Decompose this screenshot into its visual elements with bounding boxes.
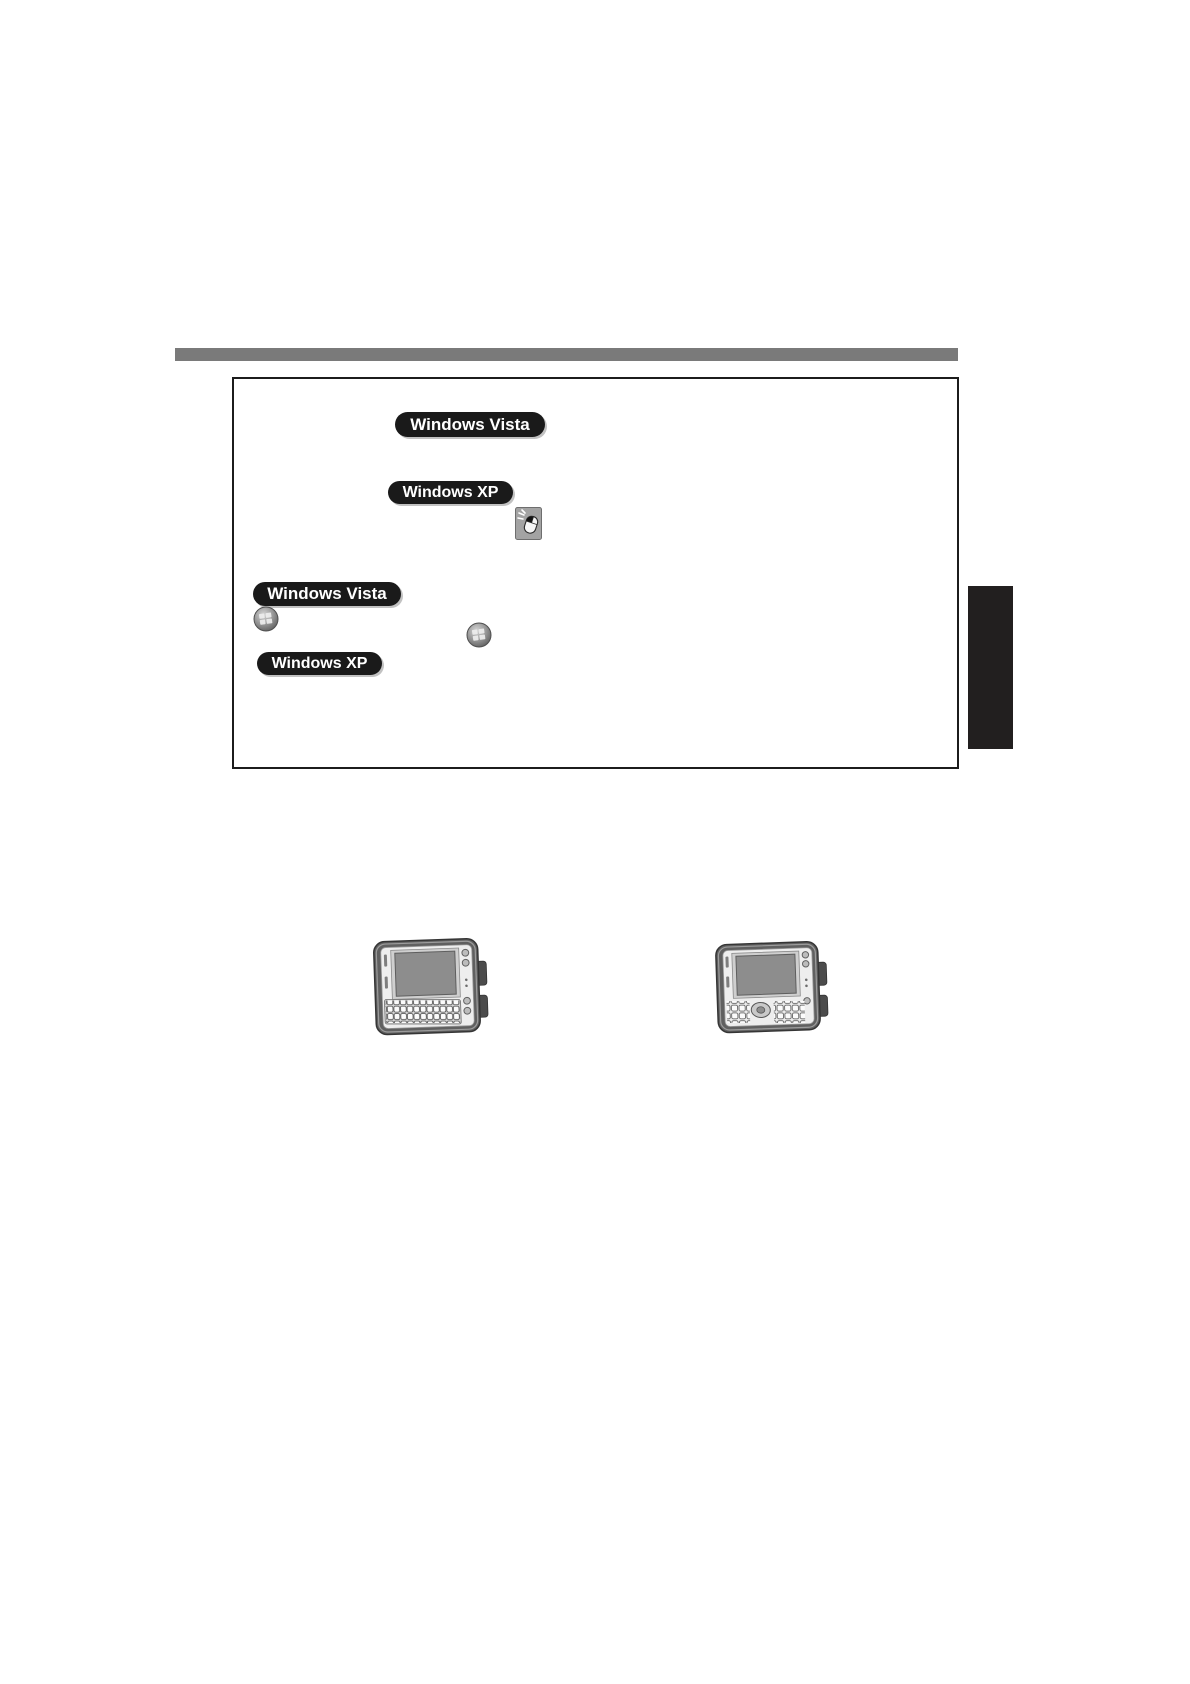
rugged-tablet-qwerty-keyboard [373,937,490,1037]
windows-xp-badge: Windows XP [257,652,382,675]
mouse-click-icon [515,507,542,540]
windows-vista-badge: Windows Vista [395,412,545,437]
windows-vista-badge: Windows Vista [253,582,401,606]
windows-xp-badge: Windows XP [388,481,513,504]
section-divider-bar [175,348,958,361]
manual-page: { "document": { "kind": "scanned-manual-… [0,0,1190,1684]
callout-box [232,377,959,769]
chapter-side-tab [968,586,1013,749]
windows-start-orb-icon [253,606,279,632]
windows-start-orb-icon [466,622,492,648]
rugged-tablet-numeric-keypad [715,940,830,1035]
